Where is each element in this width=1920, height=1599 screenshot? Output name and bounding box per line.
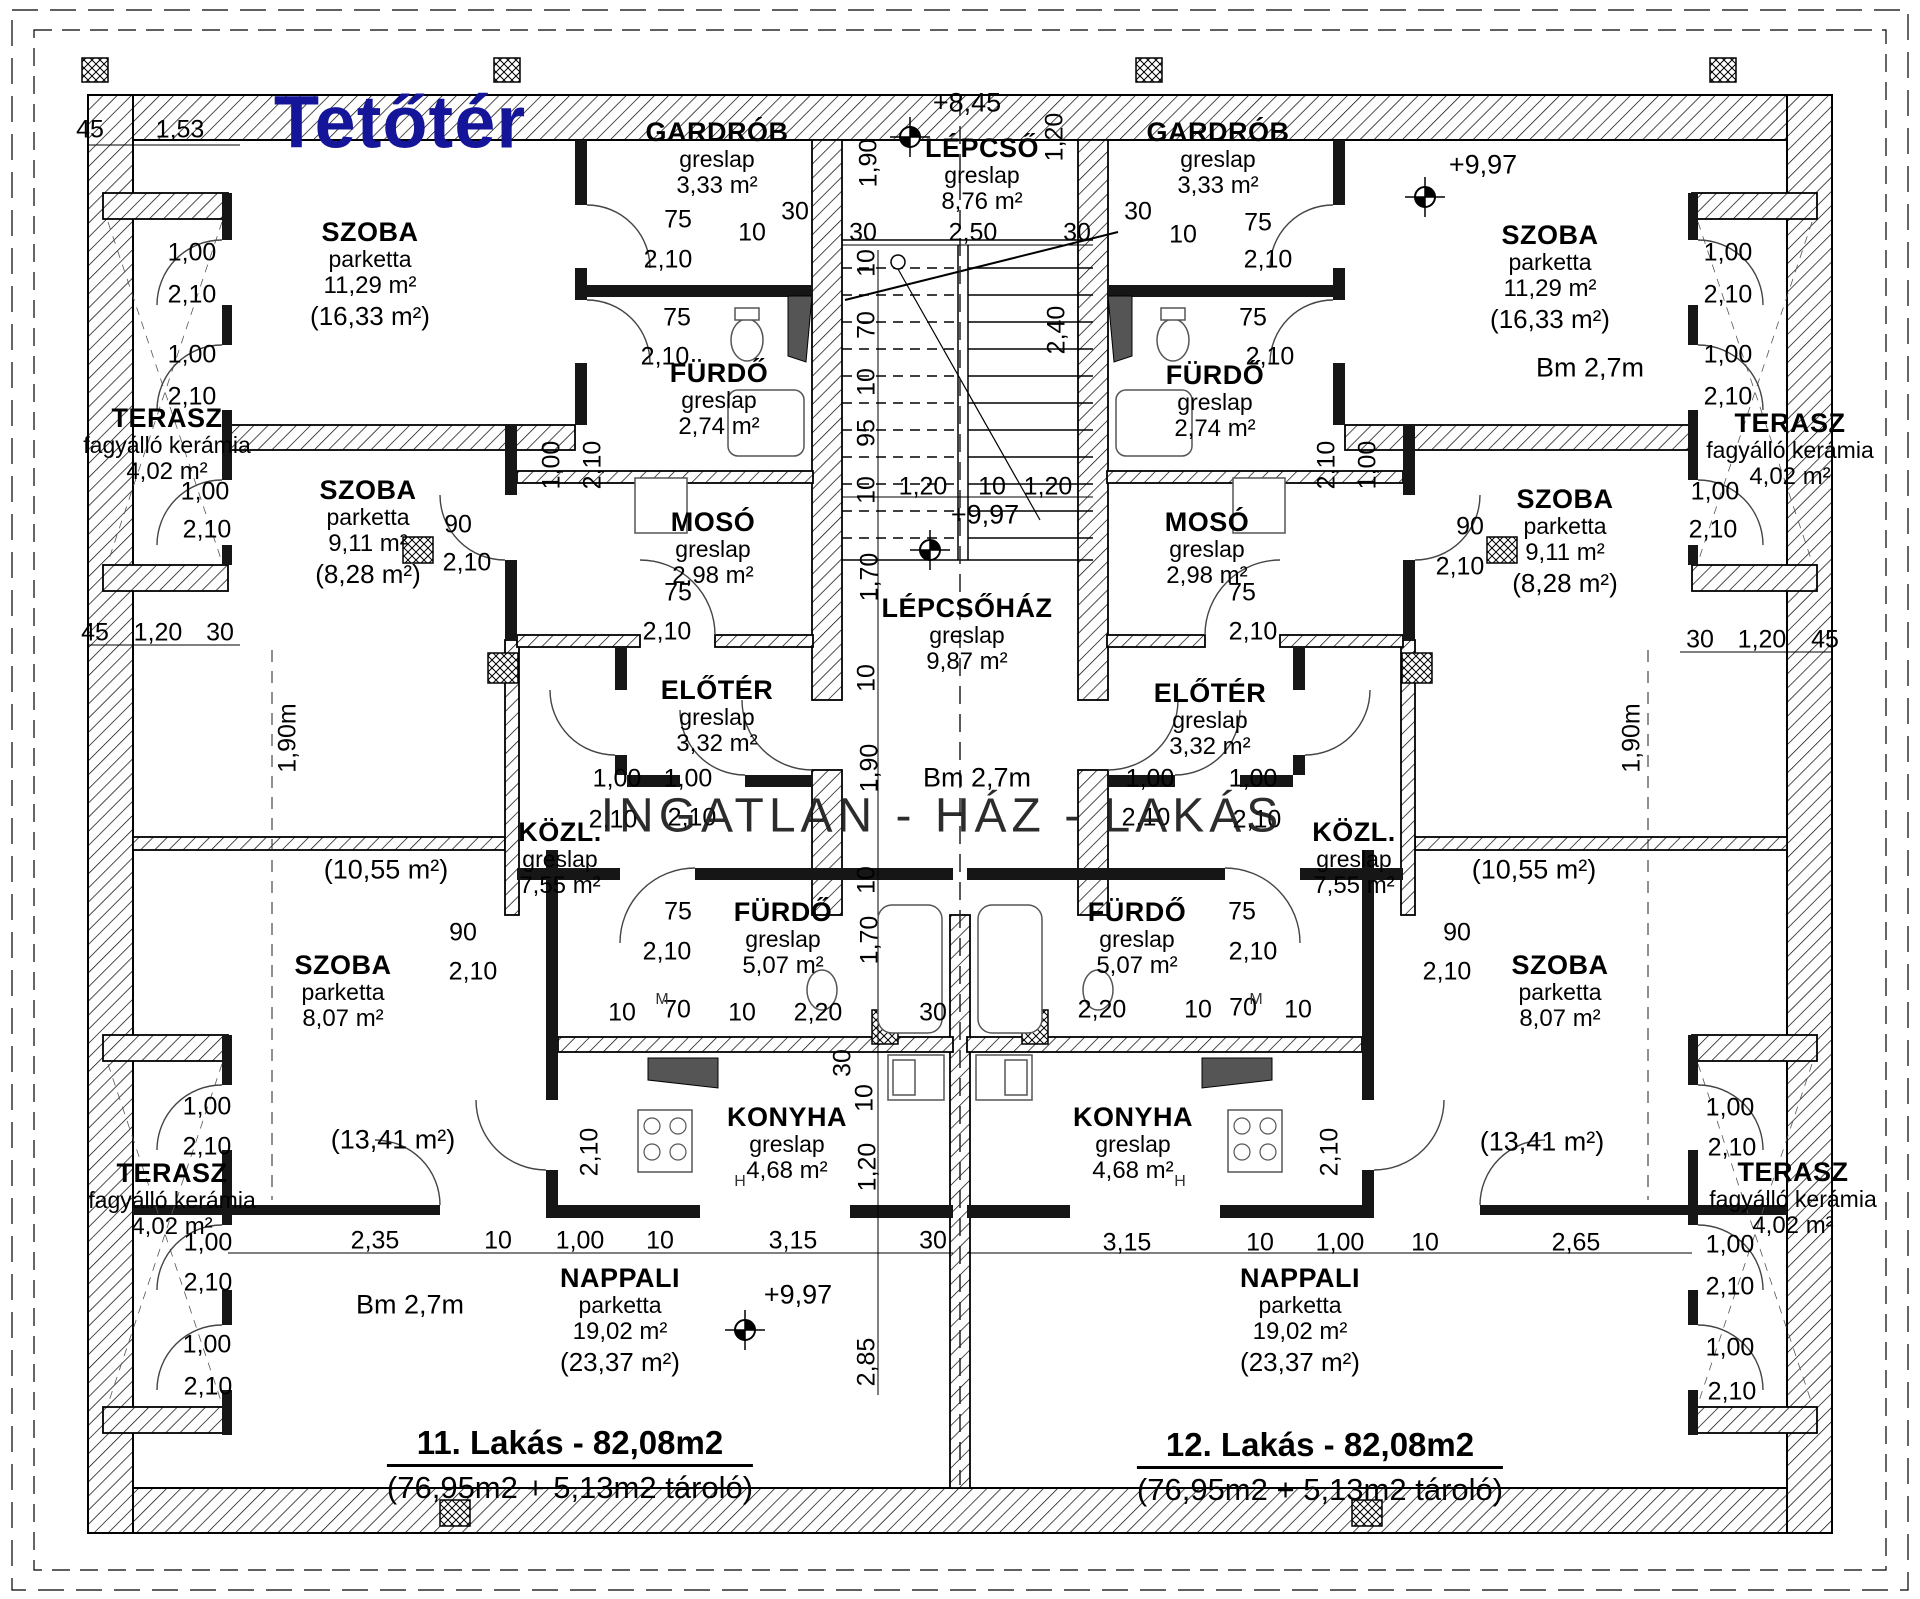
dim-label: 2,40 <box>1043 306 1072 355</box>
dim-label: 2,10 <box>1244 246 1293 275</box>
room-label-line: MOSÓ <box>1165 507 1250 537</box>
dim-label: 2,50 <box>949 219 998 248</box>
room-label: FÜRDŐgreslap2,74 m² <box>1166 360 1265 443</box>
room-label-line: NAPPALI <box>1240 1263 1360 1293</box>
room-label-line: 9,87 m² <box>881 649 1052 676</box>
room-label-line: fagyálló kerámia <box>1706 438 1873 464</box>
room-label-line: greslap <box>1165 537 1250 563</box>
dim-label: 1,20 <box>1738 626 1787 655</box>
dim-label: 1,20 <box>1041 113 1070 162</box>
apartment-12-label: 12. Lakás - 82,08m2 (76,95m2 + 5,13m2 tá… <box>1137 1426 1503 1508</box>
room-label-line: parketta <box>295 980 392 1006</box>
room-label-line: 5,07 m² <box>1088 953 1187 980</box>
room-label-line: parketta <box>1240 1293 1360 1319</box>
dim-label: 75 <box>663 304 691 333</box>
room-label-line: 3,33 m² <box>1147 173 1290 200</box>
dim-label: 1,00 <box>1706 1094 1755 1123</box>
room-label-line: 8,76 m² <box>925 189 1039 216</box>
room-label-line: parketta <box>1490 250 1610 276</box>
dim-label: 1,00 <box>184 1229 233 1258</box>
small-note: H <box>734 1173 746 1191</box>
dim-label: 10 <box>646 1227 674 1256</box>
dim-label: 2,85 <box>853 1338 882 1387</box>
room-label-line: 5,07 m² <box>734 953 833 980</box>
room-label-line: GARDRÓB <box>1147 117 1290 147</box>
dim-label: 1,20 <box>899 473 948 502</box>
apartment-11-label: 11. Lakás - 82,08m2 (76,95m2 + 5,13m2 tá… <box>387 1424 753 1506</box>
room-label: MOSÓgreslap2,98 m² <box>671 507 756 590</box>
dim-label: 30 <box>829 1049 858 1077</box>
dim-label: 1,53 <box>156 116 205 145</box>
dim-label: 70 <box>853 311 882 339</box>
dim-label: 90 <box>449 919 477 948</box>
dim-label: 1,00 <box>1704 341 1753 370</box>
room-label-line: LÉPCSŐHÁZ <box>881 593 1052 623</box>
room-label-line: 7,55 m² <box>518 873 602 900</box>
dim-label: 2,35 <box>351 1227 400 1256</box>
dim-label: 10 <box>728 999 756 1028</box>
dim-label: 1,90 <box>856 744 885 793</box>
dim-label: 2,10 <box>1423 958 1472 987</box>
dim-label: 30 <box>206 619 234 648</box>
dim-label: 2,10 <box>184 1373 233 1402</box>
dim-label: 2,10 <box>1229 938 1278 967</box>
dim-label: 10 <box>1169 221 1197 250</box>
small-note: H <box>1174 1173 1186 1191</box>
dim-label: 1,00 <box>556 1227 605 1256</box>
dim-label: 75 <box>664 206 692 235</box>
apartment-11-title: 11. Lakás - 82,08m2 <box>387 1424 753 1467</box>
room-label-line: parketta <box>1512 514 1617 540</box>
dim-label: 2,10 <box>184 1269 233 1298</box>
room-label-line: (23,37 m²) <box>560 1346 680 1377</box>
room-label: FÜRDŐgreslap5,07 m² <box>734 897 833 980</box>
dim-label: 1,00 <box>168 239 217 268</box>
dim-label: 10 <box>1411 1229 1439 1258</box>
room-label-line: 3,32 m² <box>661 731 774 758</box>
dim-label: 2,10 <box>643 938 692 967</box>
dim-label: 10 <box>1284 996 1312 1025</box>
room-label-line: SZOBA <box>1512 950 1609 980</box>
dim-label: 90 <box>1456 513 1484 542</box>
dim-label: 2,65 <box>1552 1229 1601 1258</box>
dim-label: 3,15 <box>1103 1229 1152 1258</box>
dim-label: 45 <box>76 116 104 145</box>
dim-label: 90 <box>444 511 472 540</box>
room-label-line: greslap <box>1312 847 1396 873</box>
room-label-line: (8,28 m²) <box>1512 567 1617 598</box>
dim-label: 2,10 <box>579 441 608 490</box>
room-label: FÜRDŐgreslap5,07 m² <box>1088 897 1187 980</box>
dim-label: 1,70 <box>856 553 885 602</box>
dim-label: 75 <box>664 898 692 927</box>
dim-label: 1,20 <box>134 619 183 648</box>
dim-label: 2,10 <box>641 343 690 372</box>
room-label: ELŐTÉRgreslap3,32 m² <box>1154 678 1267 761</box>
dim-label: 10 <box>853 249 882 277</box>
dim-label: 90 <box>1443 919 1471 948</box>
room-label-line: greslap <box>727 1132 847 1158</box>
dim-label: 75 <box>1239 304 1267 333</box>
dim-label: 1,00 <box>1706 1334 1755 1363</box>
dim-label: 2,10 <box>1689 516 1738 545</box>
dim-label: 1,90m <box>274 703 303 772</box>
room-label-line: greslap <box>1073 1132 1193 1158</box>
area-note: (13,41 m²) <box>331 1125 456 1156</box>
apartment-12-title: 12. Lakás - 82,08m2 <box>1137 1426 1503 1469</box>
room-label-line: parketta <box>315 505 420 531</box>
dim-label: 2,10 <box>168 383 217 412</box>
dim-label: 2,10 <box>1708 1134 1757 1163</box>
dim-label: 1,70 <box>856 916 885 965</box>
room-label: GARDRÓBgreslap3,33 m² <box>1147 117 1290 200</box>
dim-label: 1,00 <box>1316 1229 1365 1258</box>
room-label-line: 7,55 m² <box>1312 873 1396 900</box>
dim-label: 45 <box>1811 626 1839 655</box>
room-label-line: (8,28 m²) <box>315 558 420 589</box>
ceiling-height-note: Bm 2,7m <box>356 1290 464 1321</box>
dim-label: 2,20 <box>1078 996 1127 1025</box>
room-label: TERASZfagyálló kerámia4,02 m² <box>1709 1157 1876 1240</box>
dim-label: 2,10 <box>183 516 232 545</box>
dim-label: 1,00 <box>183 1331 232 1360</box>
room-label-line: greslap <box>734 927 833 953</box>
dim-label: 30 <box>781 198 809 227</box>
apartment-11-subtitle: (76,95m2 + 5,13m2 tároló) <box>387 1467 753 1506</box>
room-label-line: MOSÓ <box>671 507 756 537</box>
room-label: TERASZfagyálló kerámia4,02 m² <box>83 403 250 486</box>
room-label-line: 3,32 m² <box>1154 734 1267 761</box>
dim-label: 10 <box>853 866 882 894</box>
room-label-line: ELŐTÉR <box>661 675 774 705</box>
dim-label: 30 <box>1124 198 1152 227</box>
room-label: LÉPCSŐgreslap8,76 m² <box>925 133 1039 216</box>
room-label-line: 8,07 m² <box>1512 1006 1609 1033</box>
room-label: MOSÓgreslap2,98 m² <box>1165 507 1250 590</box>
room-label-line: SZOBA <box>295 950 392 980</box>
dim-label: 2,10 <box>1704 383 1753 412</box>
room-label-line: 11,29 m² <box>1490 276 1610 303</box>
room-label-line: KONYHA <box>727 1102 847 1132</box>
room-label-line: greslap <box>661 705 774 731</box>
level-mark-label: +9,97 <box>1449 150 1517 181</box>
dim-label: 1,90 <box>855 139 884 188</box>
room-label-line: (16,33 m²) <box>1490 303 1610 334</box>
dim-label: 2,10 <box>1246 343 1295 372</box>
small-note: M <box>655 991 668 1009</box>
room-label: SZOBAparketta9,11 m²(8,28 m²) <box>1512 484 1617 598</box>
room-label-line: KÖZL. <box>1312 817 1396 847</box>
room-label-line: 9,11 m² <box>1512 540 1617 567</box>
dim-label: 10 <box>738 219 766 248</box>
dim-label: 2,10 <box>449 958 498 987</box>
dim-label: 30 <box>919 999 947 1028</box>
dim-label: 2,10 <box>1436 553 1485 582</box>
room-label-line: greslap <box>925 163 1039 189</box>
dim-label: 10 <box>1246 1229 1274 1258</box>
dim-label: 2,10 <box>168 281 217 310</box>
room-label-line: SZOBA <box>315 475 420 505</box>
room-label: SZOBAparketta11,29 m²(16,33 m²) <box>1490 220 1610 334</box>
dim-label: 30 <box>919 1227 947 1256</box>
dim-label: 30 <box>1063 219 1091 248</box>
area-note: (13,41 m²) <box>1480 1127 1605 1158</box>
room-label-line: greslap <box>1154 708 1267 734</box>
level-mark-label: +9,97 <box>951 500 1019 531</box>
room-label-line: 2,74 m² <box>1166 416 1265 443</box>
small-note: M <box>1249 991 1262 1009</box>
dim-label: 1,00 <box>183 1093 232 1122</box>
room-label-line: ELŐTÉR <box>1154 678 1267 708</box>
room-label-line: (16,33 m²) <box>310 300 430 331</box>
dim-label: 45 <box>81 619 109 648</box>
dim-label: 3,15 <box>769 1227 818 1256</box>
dim-label: 30 <box>1686 626 1714 655</box>
dim-label: 1,20 <box>854 1143 883 1192</box>
dim-label: 1,90m <box>1618 703 1647 772</box>
dim-label: 2,10 <box>576 1128 605 1177</box>
dim-label: 2,10 <box>1229 618 1278 647</box>
room-label-line: 19,02 m² <box>560 1319 680 1346</box>
ceiling-height-note: Bm 2,7m <box>1536 353 1644 384</box>
dim-label: 95 <box>853 419 882 447</box>
room-label-line: fagyálló kerámia <box>88 1188 255 1214</box>
dim-label: 1,00 <box>1691 478 1740 507</box>
dim-label: 2,10 <box>1708 1378 1757 1407</box>
dim-label: 30 <box>849 219 877 248</box>
room-label-line: greslap <box>1166 390 1265 416</box>
dim-label: 10 <box>608 999 636 1028</box>
dim-label: 2,10 <box>1706 1273 1755 1302</box>
room-label-line: FÜRDŐ <box>734 897 833 927</box>
dim-label: 1,00 <box>1354 441 1383 490</box>
dim-label: 1,00 <box>1704 239 1753 268</box>
room-label-line: greslap <box>646 147 789 173</box>
room-label-line: greslap <box>671 537 756 563</box>
room-label-line: (23,37 m²) <box>1240 1346 1360 1377</box>
dim-label: 2,10 <box>183 1133 232 1162</box>
room-label-line: parketta <box>310 247 430 273</box>
room-label-line: TERASZ <box>1706 408 1873 438</box>
room-label: NAPPALIparketta19,02 m²(23,37 m²) <box>1240 1263 1360 1377</box>
dim-label: 10 <box>484 1227 512 1256</box>
room-label-line: 2,74 m² <box>670 414 769 441</box>
dim-label: 1,00 <box>1706 1231 1755 1260</box>
room-label-line: GARDRÓB <box>646 117 789 147</box>
room-label: LÉPCSŐHÁZgreslap9,87 m² <box>881 593 1052 676</box>
room-label: NAPPALIparketta19,02 m²(23,37 m²) <box>560 1263 680 1377</box>
dim-label: 75 <box>1228 579 1256 608</box>
room-label-line: 3,33 m² <box>646 173 789 200</box>
room-label-line: TERASZ <box>88 1158 255 1188</box>
dim-label: 1,20 <box>1024 473 1073 502</box>
dim-label: 2,10 <box>1313 441 1342 490</box>
room-label: SZOBAparketta9,11 m²(8,28 m²) <box>315 475 420 589</box>
room-label: SZOBAparketta11,29 m²(16,33 m²) <box>310 217 430 331</box>
room-label-line: SZOBA <box>1490 220 1610 250</box>
apartment-12-subtitle: (76,95m2 + 5,13m2 tároló) <box>1137 1469 1503 1508</box>
dim-label: 2,10 <box>1316 1128 1345 1177</box>
dim-label: 10 <box>851 1084 880 1112</box>
room-label-line: greslap <box>1147 147 1290 173</box>
room-label-line: SZOBA <box>310 217 430 247</box>
room-label-line: KONYHA <box>1073 1102 1193 1132</box>
dim-label: 2,10 <box>1704 281 1753 310</box>
dim-label: 10 <box>853 476 882 504</box>
room-label-line: 9,11 m² <box>315 531 420 558</box>
level-mark-label: +8,45 <box>933 88 1001 119</box>
dim-label: 2,20 <box>794 999 843 1028</box>
room-label-line: greslap <box>881 623 1052 649</box>
dim-label: 2,10 <box>643 618 692 647</box>
room-label-line: 19,02 m² <box>1240 1319 1360 1346</box>
floor-plan: SZOBAparketta11,29 m²(16,33 m²)GARDRÓBgr… <box>0 0 1920 1599</box>
room-label-line: NAPPALI <box>560 1263 680 1293</box>
dim-label: 10 <box>1184 996 1212 1025</box>
dim-label: 1,00 <box>181 478 230 507</box>
room-label: KÖZL.greslap7,55 m² <box>1312 817 1396 900</box>
room-label: GARDRÓBgreslap3,33 m² <box>646 117 789 200</box>
room-label-line: 11,29 m² <box>310 273 430 300</box>
dim-label: 2,10 <box>644 246 693 275</box>
watermark: INGATLAN - HÁZ - LAKÁS <box>601 789 1284 844</box>
room-label-line: parketta <box>1512 980 1609 1006</box>
room-label-line: greslap <box>1088 927 1187 953</box>
room-label-line: 8,07 m² <box>295 1006 392 1033</box>
room-label-line: fagyálló kerámia <box>1709 1187 1876 1213</box>
page-title: Tetőtér <box>274 80 526 165</box>
room-label: ELŐTÉRgreslap3,32 m² <box>661 675 774 758</box>
area-note: (10,55 m²) <box>1472 855 1597 886</box>
room-label-line: LÉPCSŐ <box>925 133 1039 163</box>
dim-label: 75 <box>1244 209 1272 238</box>
room-label-line: greslap <box>518 847 602 873</box>
dim-label: 1,00 <box>168 341 217 370</box>
level-mark-label: +9,97 <box>764 1280 832 1311</box>
dim-label: 2,10 <box>443 549 492 578</box>
dim-label: 1,00 <box>538 441 567 490</box>
room-label-line: SZOBA <box>1512 484 1617 514</box>
dim-label: 75 <box>1228 898 1256 927</box>
dim-label: 10 <box>978 473 1006 502</box>
dim-label: 10 <box>853 368 882 396</box>
area-note: (10,55 m²) <box>324 855 449 886</box>
room-label-line: greslap <box>670 388 769 414</box>
room-label: SZOBAparketta8,07 m² <box>1512 950 1609 1033</box>
room-label-line: fagyálló kerámia <box>83 433 250 459</box>
room-label: SZOBAparketta8,07 m² <box>295 950 392 1033</box>
dim-label: 10 <box>853 664 882 692</box>
room-label-line: FÜRDŐ <box>1088 897 1187 927</box>
room-label-line: parketta <box>560 1293 680 1319</box>
dim-label: 75 <box>664 579 692 608</box>
